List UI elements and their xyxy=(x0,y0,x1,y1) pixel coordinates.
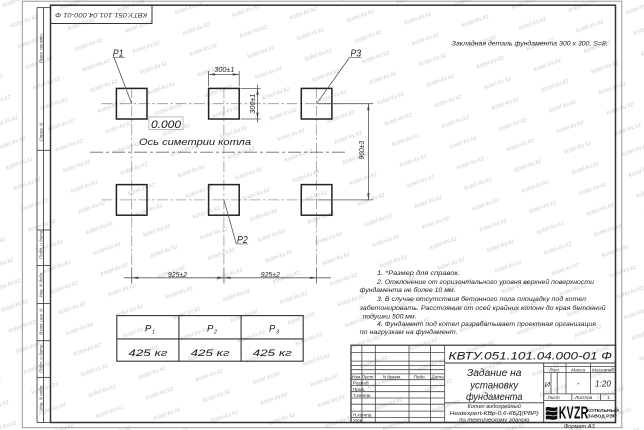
svg-text:Перв. примен.: Перв. примен. xyxy=(38,33,43,63)
svg-text:КВТУ.051.101.04.000-01 Ф: КВТУ.051.101.04.000-01 Ф xyxy=(55,11,147,18)
svg-text:N докум.: N докум. xyxy=(383,374,402,379)
svg-text:Формат А3: Формат А3 xyxy=(564,424,595,430)
svg-text:забетонировать. Расстояние от: забетонировать. Расстояние от осей крайн… xyxy=(359,304,606,312)
svg-text:Ось симетрии котла: Ось симетрии котла xyxy=(139,137,251,148)
svg-text:Heatexpert-КВр-0,6-КБД(РВР): Heatexpert-КВр-0,6-КБД(РВР) xyxy=(450,411,539,417)
svg-text:4. Фундамент под котел разраба: 4. Фундамент под котел разрабатывает про… xyxy=(377,320,596,328)
svg-text:фундамента не более 10 мм.: фундамента не более 10 мм. xyxy=(360,286,456,294)
svg-text:-: - xyxy=(577,378,580,388)
svg-text:подушки 500 мм.: подушки 500 мм. xyxy=(363,312,417,320)
svg-text:Справ. N: Справ. N xyxy=(38,122,43,142)
svg-text:Лит.: Лит. xyxy=(548,368,560,373)
svg-text:Подп. и дата: Подп. и дата xyxy=(38,230,43,259)
svg-text:Взам. инв. N: Взам. инв. N xyxy=(38,308,43,335)
svg-text:Инв. N подл.: Инв. N подл. xyxy=(38,384,43,410)
svg-text:по техническому зданию: по техническому зданию xyxy=(459,417,529,423)
svg-text:ЗАВОД РЭП: ЗАВОД РЭП xyxy=(588,414,617,420)
svg-text:по нагрузкам на фундамент.: по нагрузкам на фундамент. xyxy=(360,328,458,336)
svg-text:Подп. и дата: Подп. и дата xyxy=(38,344,43,373)
svg-text:Разраб.: Разраб. xyxy=(353,381,370,386)
svg-text:1: 1 xyxy=(152,330,155,336)
svg-text:И: И xyxy=(545,380,551,389)
svg-text:Пров.: Пров. xyxy=(353,387,365,392)
svg-text:425 кг: 425 кг xyxy=(191,348,231,358)
svg-text:Дата: Дата xyxy=(430,374,444,379)
svg-text:KVZR: KVZR xyxy=(559,404,589,423)
svg-text:925±2: 925±2 xyxy=(261,272,280,279)
svg-text:300±1: 300±1 xyxy=(214,67,234,74)
svg-text:Листов: Листов xyxy=(574,395,593,400)
svg-text:Т.контр.: Т.контр. xyxy=(353,393,372,398)
svg-text:3. В случае отсутствия бетонно: 3. В случае отсутствия бетонного пола пл… xyxy=(377,295,586,303)
svg-text:2: 2 xyxy=(213,330,217,336)
svg-text:2. Отклонение от горизонтально: 2. Отклонение от горизонтального уровня … xyxy=(376,278,594,286)
svg-text:960±3: 960±3 xyxy=(359,141,366,160)
svg-text:Р: Р xyxy=(269,324,276,335)
svg-text:КВТУ.051.101.04.000-01 Ф: КВТУ.051.101.04.000-01 Ф xyxy=(449,350,613,362)
svg-text:Закладная деталь фундамента 3: Закладная деталь фундамента 300 х 300, S… xyxy=(452,39,608,47)
svg-text:1:20: 1:20 xyxy=(595,379,611,388)
svg-text:425 кг: 425 кг xyxy=(253,348,293,358)
svg-text:фундамента: фундамента xyxy=(466,391,523,403)
svg-text:925±2: 925±2 xyxy=(168,272,187,279)
svg-text:300±1: 300±1 xyxy=(250,94,257,114)
svg-text:1. *Размер для справок.: 1. *Размер для справок. xyxy=(377,269,460,277)
svg-text:Изм.Лист: Изм.Лист xyxy=(352,374,374,379)
svg-text:Лист: Лист xyxy=(547,395,560,400)
svg-text:Подп.: Подп. xyxy=(413,374,425,379)
svg-text:Р2: Р2 xyxy=(237,233,248,245)
svg-text:Масса: Масса xyxy=(571,368,585,373)
svg-text:Масштаб: Масштаб xyxy=(592,368,614,373)
svg-text:Задание на: Задание на xyxy=(467,368,522,379)
svg-text:Р1: Р1 xyxy=(113,47,124,59)
svg-text:0.000: 0.000 xyxy=(151,119,182,131)
svg-text:425 кг: 425 кг xyxy=(128,348,168,358)
svg-text:Утв.: Утв. xyxy=(353,418,364,423)
svg-text:Р: Р xyxy=(145,324,152,335)
svg-text:Р3: Р3 xyxy=(350,47,361,59)
svg-text:Р: Р xyxy=(207,324,214,335)
svg-text:установку: установку xyxy=(469,381,519,392)
svg-text:Н.контр.: Н.контр. xyxy=(353,412,373,417)
svg-text:1: 1 xyxy=(607,395,610,400)
svg-text:Котел водогрейный: Котел водогрейный xyxy=(468,403,521,410)
svg-text:Инв. N дубл.: Инв. N дубл. xyxy=(38,271,43,297)
